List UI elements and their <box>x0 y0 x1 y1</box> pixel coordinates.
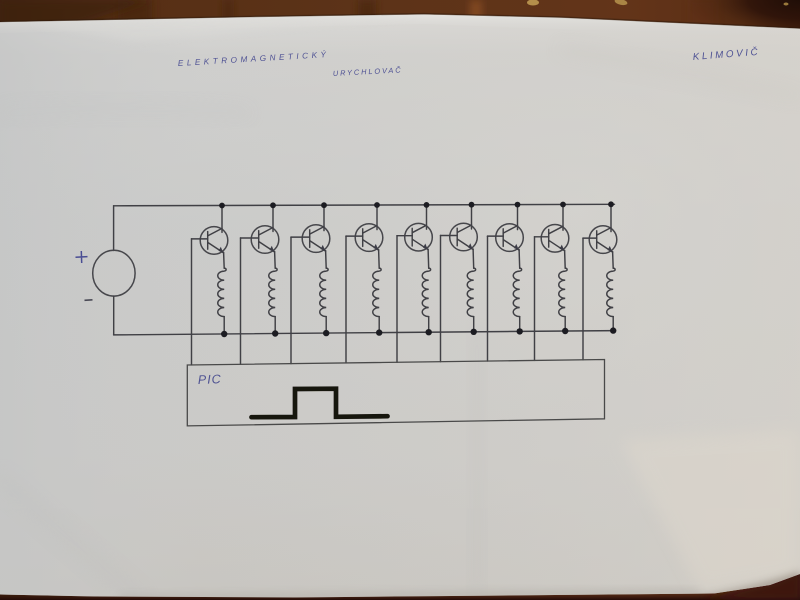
svg-text:PIC: PIC <box>198 372 222 387</box>
